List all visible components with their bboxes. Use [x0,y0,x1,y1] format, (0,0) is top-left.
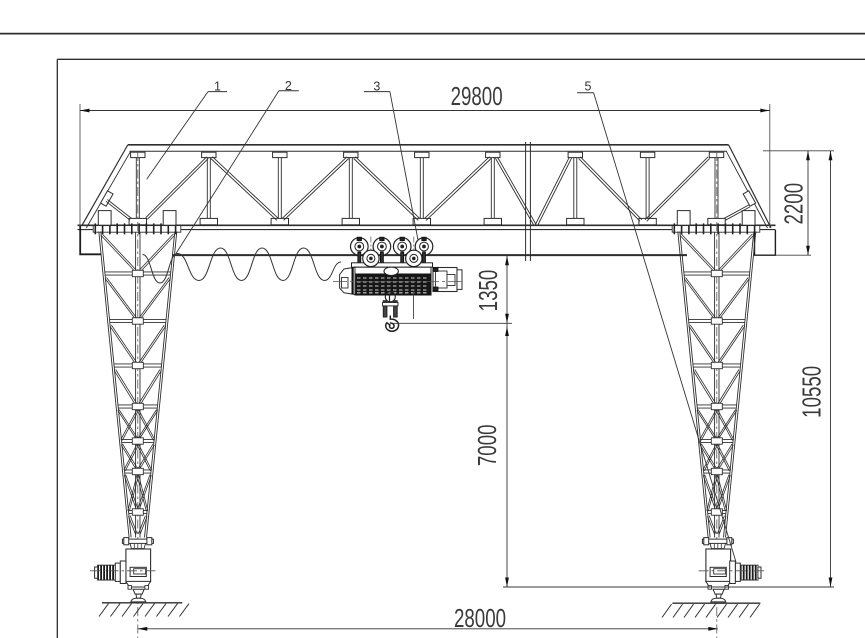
svg-text:10550: 10550 [796,366,826,418]
svg-text:28000: 28000 [454,603,506,633]
svg-text:5: 5 [585,79,592,93]
svg-text:7000: 7000 [472,424,502,466]
svg-text:29800: 29800 [451,81,503,111]
svg-text:1350: 1350 [473,270,503,312]
svg-text:2200: 2200 [778,183,808,225]
